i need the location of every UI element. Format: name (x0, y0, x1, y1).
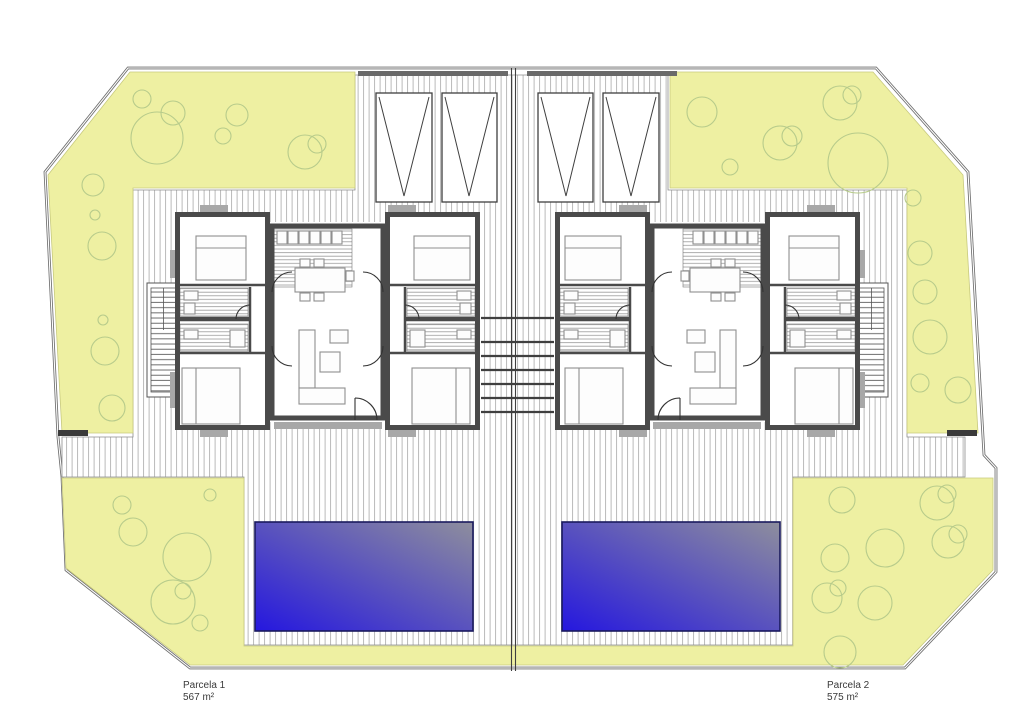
parcel2-area-label: 575 m² (827, 692, 859, 703)
pool-parcel-1 (255, 522, 473, 631)
parcel1-name-label: Parcela 1 (183, 680, 226, 691)
site-plan-canvas: Parcela 1 567 m² Parcela 2 575 m² (0, 0, 1024, 724)
parcel1-area-label: 567 m² (183, 692, 215, 703)
pool-parcel-2 (562, 522, 780, 631)
parcel-labels: Parcela 1 567 m² Parcela 2 575 m² (183, 680, 870, 703)
parcel2-name-label: Parcela 2 (827, 680, 870, 691)
